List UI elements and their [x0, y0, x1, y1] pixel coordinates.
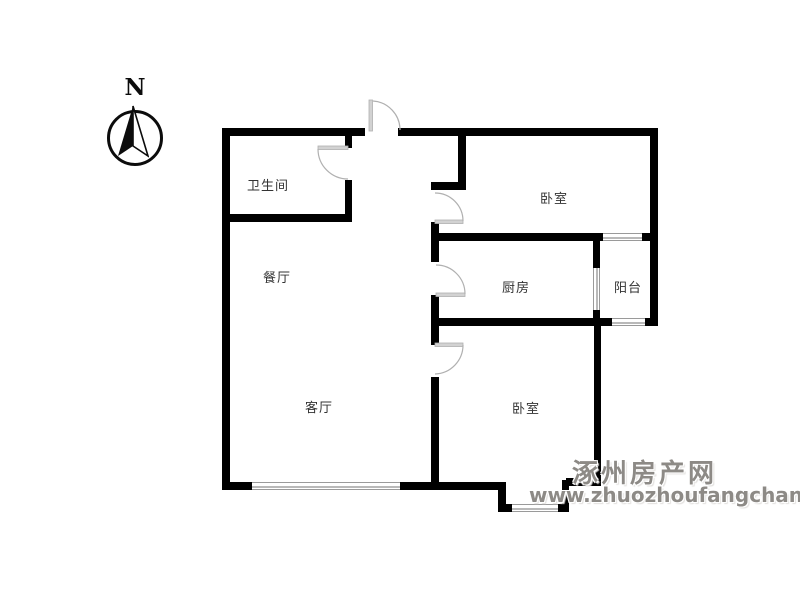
- door-leaf-bathroom: [318, 146, 348, 150]
- room-label-dining-room: 餐厅: [263, 267, 291, 286]
- room-label-kitchen: 厨房: [502, 277, 530, 296]
- door-arc-bathroom: [318, 149, 348, 179]
- door-symbols-layer: [0, 0, 800, 600]
- room-label-bathroom: 卫生间: [247, 175, 289, 194]
- door-arc-kitchen: [436, 265, 465, 294]
- room-label-living-room: 客厅: [305, 397, 333, 416]
- room-label-bedroom-north: 卧室: [540, 188, 568, 207]
- door-leaf-kitchen: [436, 293, 465, 297]
- room-label-balcony: 阳台: [614, 277, 642, 296]
- door-arc-bedroom-south: [435, 345, 463, 374]
- door-arc-bedroom-north: [435, 193, 463, 221]
- floor-plan: N: [0, 0, 800, 600]
- door-leaf-entrance: [369, 100, 373, 131]
- door-leaf-bedroom-north: [435, 220, 463, 224]
- door-leaf-bedroom-south: [435, 343, 463, 347]
- door-arc-entrance: [373, 101, 400, 130]
- room-label-bedroom-south: 卧室: [512, 398, 540, 417]
